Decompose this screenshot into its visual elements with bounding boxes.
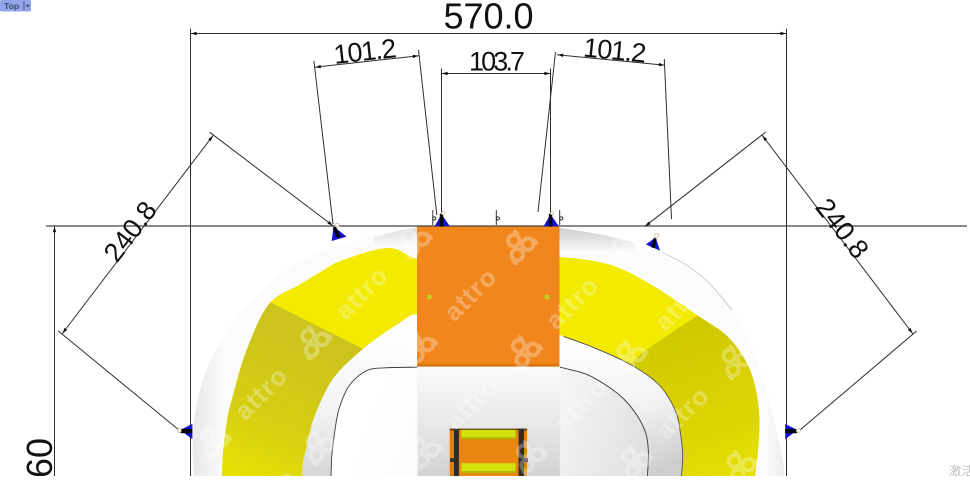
svg-text:激活 Windows: 激活 Windows xyxy=(949,465,970,477)
svg-text:103.7: 103.7 xyxy=(469,47,525,77)
svg-text:60: 60 xyxy=(19,438,60,476)
svg-text:570.0: 570.0 xyxy=(443,0,533,37)
svg-text:Top: Top xyxy=(4,1,19,11)
svg-text:101.2: 101.2 xyxy=(582,33,648,69)
